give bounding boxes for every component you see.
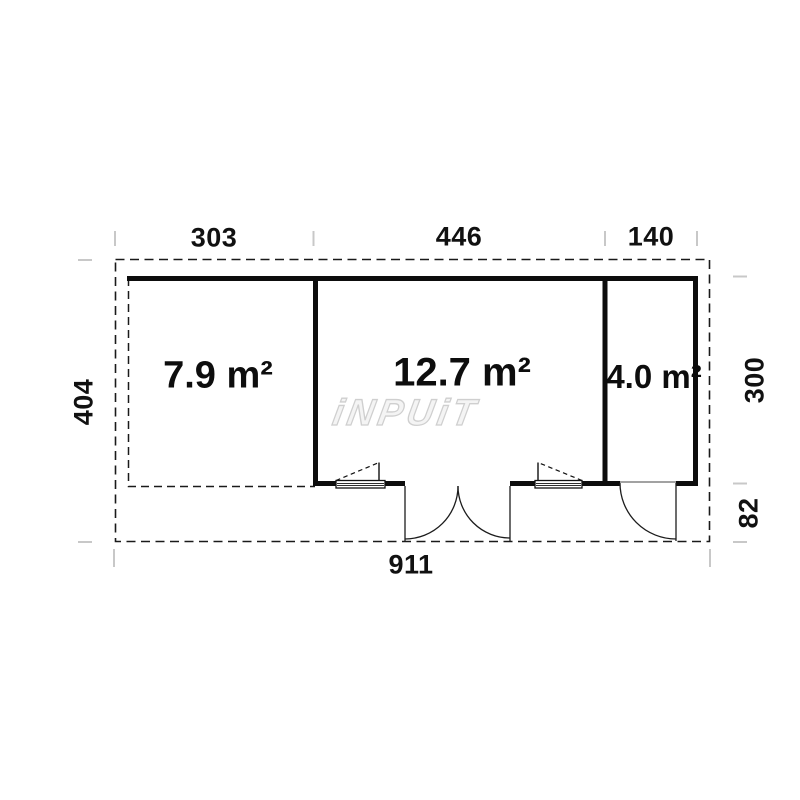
room-label-side: 4.0 m²	[606, 358, 701, 396]
door-swing-arc	[620, 483, 676, 539]
room-label-main: 12.7 m²	[393, 351, 531, 396]
watermark-logo: iNPUiT	[330, 392, 483, 434]
dimension-top-terrace: 303	[191, 223, 238, 254]
door-swing-arc-left	[405, 486, 458, 539]
window-symbol-right	[535, 463, 582, 489]
double-door-symbol	[405, 486, 510, 541]
room-label-terrace: 7.9 m²	[163, 355, 273, 398]
window-symbol-left	[336, 463, 385, 489]
dimension-bottom-width: 911	[388, 550, 433, 581]
dimension-left-depth: 404	[69, 379, 100, 426]
floorplan-canvas: 303 446 140 404 300 82 911 7.9 m² 12.7 m…	[0, 0, 800, 800]
dimension-right-height: 300	[740, 357, 771, 404]
door-swing-arc-right	[458, 486, 510, 538]
dimension-top-side: 140	[628, 222, 675, 253]
single-door-symbol	[620, 482, 676, 541]
dimension-top-main: 446	[436, 222, 483, 253]
dimension-right-overhang: 82	[734, 497, 765, 528]
